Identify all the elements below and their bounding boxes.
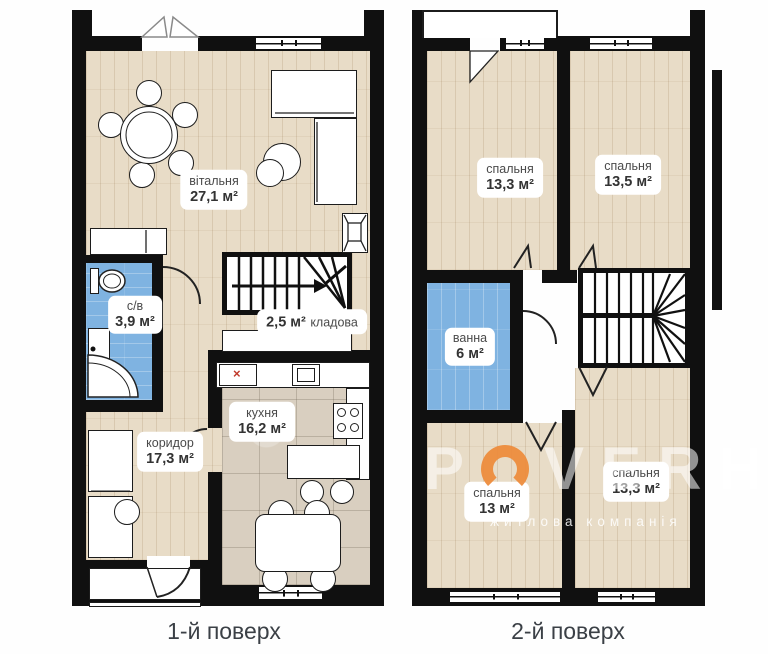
wall-segment: [712, 70, 722, 310]
kitchen-sink-basin: [297, 368, 315, 382]
room-label-wc: с/в 3,9 м²: [108, 296, 162, 334]
dining-chair: [129, 162, 155, 188]
bedroom2-window: [590, 36, 652, 51]
room-label-bedroom3: спальня 13 м²: [464, 482, 529, 522]
wall-segment: [412, 10, 427, 606]
wall-segment: [562, 410, 575, 592]
floor1-caption: 1-й поверх: [64, 618, 384, 645]
dining-table: [120, 106, 178, 164]
wall-segment: [321, 36, 384, 51]
balcony: [422, 10, 558, 38]
sofa: [314, 118, 357, 205]
bar-stool: [330, 480, 354, 504]
room-label-living: вітальня 27,1 м²: [180, 170, 247, 210]
wall-segment: [427, 270, 512, 283]
bedroom3-window: [450, 590, 560, 604]
room-label-bedroom4: спальня 13,3 м²: [603, 462, 669, 502]
wall-segment: [690, 10, 705, 606]
wall-segment: [72, 36, 142, 51]
dining-chair: [136, 80, 162, 106]
floor2-caption: 2-й поверх: [412, 618, 724, 645]
entrance-porch: [89, 568, 201, 600]
wall-segment: [72, 10, 86, 606]
living-room-window: [256, 36, 321, 51]
wall-segment: [427, 410, 523, 423]
floorplan-canvas: ×: [0, 0, 768, 654]
kitchen-island: [287, 445, 360, 479]
wall-segment: [370, 10, 384, 606]
room-label-bedroom1: спальня 13,3 м²: [477, 158, 543, 198]
bedroom1-window: [506, 36, 544, 51]
floor1-plan: ×: [64, 10, 384, 606]
toilet-tank: [90, 268, 99, 294]
room-label-corridor: коридор 17,3 м²: [137, 432, 203, 472]
stove-burner: [350, 423, 359, 432]
porch-step: [89, 602, 201, 607]
stove-burner: [337, 423, 346, 432]
staircase-floor1: [222, 252, 352, 315]
wall-segment: [557, 36, 570, 270]
bedroom4-window: [598, 590, 655, 604]
floor2-plan: спальня 13,3 м² спальня 13,5 м² ванна 6 …: [412, 10, 724, 606]
wall-segment: [542, 270, 577, 283]
washer-marker: ×: [233, 366, 241, 381]
wall-segment: [652, 36, 690, 51]
room-label-bath: ванна 6 м²: [445, 328, 495, 366]
kitchen-table: [255, 514, 341, 572]
wall-segment: [208, 472, 222, 606]
wall-segment: [427, 36, 470, 51]
wall-segment: [86, 400, 163, 412]
sofa: [271, 70, 357, 118]
console-shelf: [90, 228, 167, 255]
wardrobe: [88, 430, 133, 492]
entrance-door-opening: [147, 556, 190, 568]
tv-unit: [342, 213, 368, 253]
watermark-letter: H: [718, 434, 763, 503]
wall-segment: [510, 270, 523, 423]
stove-burner: [337, 408, 346, 417]
pouf: [114, 499, 140, 525]
room-label-bedroom2: спальня 13,5 м²: [595, 155, 661, 195]
room-label-kitchen: кухня 16,2 м²: [229, 402, 295, 442]
sink: [88, 328, 110, 370]
room-label-storage: 2,5 м² кладова: [257, 309, 367, 334]
pouf: [256, 159, 284, 187]
wall-segment: [198, 36, 256, 51]
stove-burner: [350, 408, 359, 417]
staircase-floor2: [578, 268, 690, 368]
